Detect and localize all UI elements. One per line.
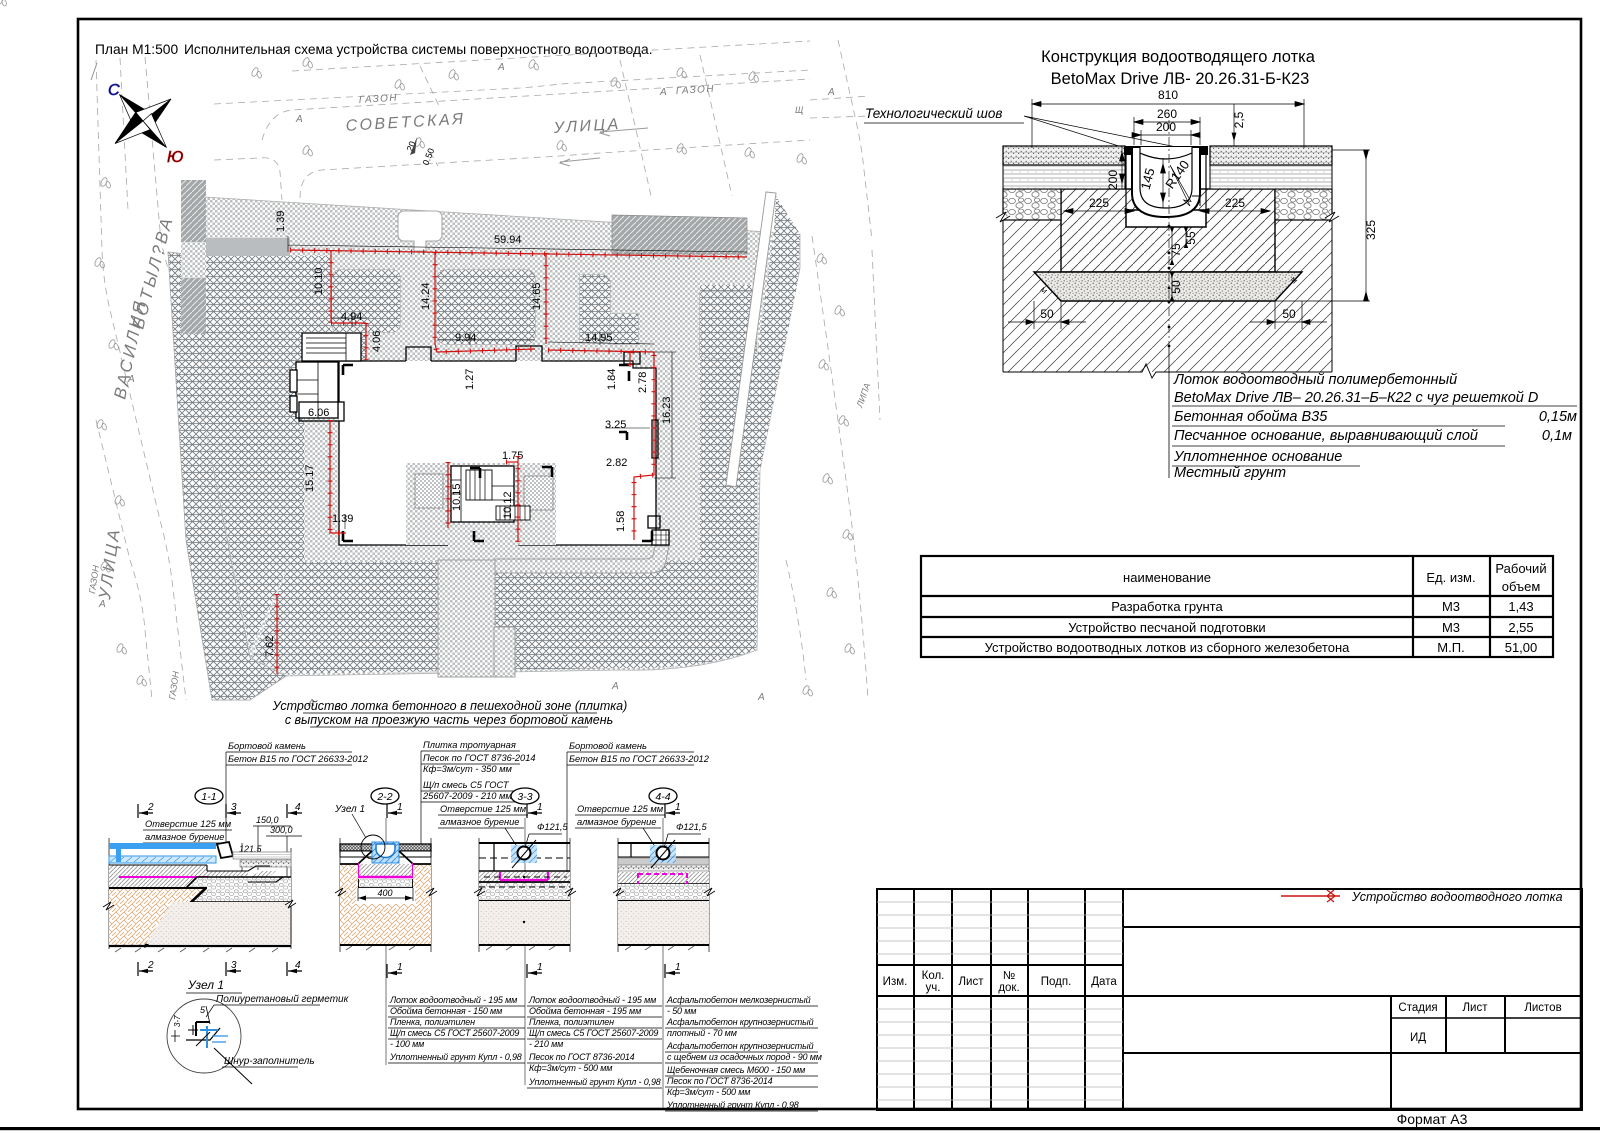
svg-text:Лоток водоотводный полимербето: Лоток водоотводный полимербетонный	[1173, 372, 1457, 388]
svg-text:10.12: 10.12	[502, 491, 514, 519]
svg-text:Рабочий: Рабочий	[1495, 561, 1546, 576]
svg-text:Уплотненный грунт Купл - 0,98: Уплотненный грунт Купл - 0,98	[389, 1052, 522, 1062]
svg-text:260: 260	[1157, 107, 1177, 121]
svg-text:4-4: 4-4	[655, 791, 670, 803]
svg-text:1-1: 1-1	[201, 791, 216, 803]
svg-text:3-3: 3-3	[517, 791, 532, 803]
svg-text:0,15м: 0,15м	[1539, 409, 1577, 425]
svg-text:9.94: 9.94	[455, 332, 476, 344]
svg-text:- 50 мм: - 50 мм	[667, 1006, 696, 1016]
svg-text:Подп.: Подп.	[1041, 976, 1072, 988]
svg-text:75: 75	[1169, 243, 1183, 257]
svg-text:2,5: 2,5	[1232, 111, 1246, 128]
svg-text:Устройство водоотводных лотков: Устройство водоотводных лотков из сборно…	[985, 640, 1351, 655]
svg-text:ГАЗОН: ГАЗОН	[676, 84, 716, 97]
svg-text:BetoMax Drive ЛВ– 20.26.31–Б–К: BetoMax Drive ЛВ– 20.26.31–Б–К22 с чуг р…	[1174, 390, 1538, 406]
svg-text:Песок по ГОСТ 8736-2014: Песок по ГОСТ 8736-2014	[667, 1076, 773, 1086]
svg-text:Кол.: Кол.	[922, 970, 945, 982]
svg-text:А: А	[98, 599, 106, 610]
svg-text:4: 4	[295, 802, 301, 813]
svg-text:4.94: 4.94	[341, 311, 362, 323]
svg-text:225: 225	[1225, 196, 1245, 210]
svg-text:План М1:500: План М1:500	[95, 42, 178, 57]
svg-text:1.84: 1.84	[606, 369, 618, 390]
svg-text:325: 325	[1364, 220, 1378, 240]
svg-text:объем: объем	[1502, 579, 1541, 594]
svg-text:50: 50	[1282, 307, 1296, 321]
svg-text:Местный грунт: Местный грунт	[1174, 465, 1286, 481]
svg-text:Устройство водоотводного лотка: Устройство водоотводного лотка	[1351, 890, 1563, 904]
svg-text:50: 50	[1169, 280, 1183, 294]
svg-text:3: 3	[231, 960, 237, 971]
svg-text:А: А	[757, 692, 765, 703]
svg-text:М3: М3	[1442, 620, 1460, 635]
svg-text:300,0: 300,0	[270, 825, 293, 835]
svg-text:Пленка, полиэтилен: Пленка, полиэтилен	[529, 1017, 614, 1027]
svg-text:Устройство лотка бетонного в п: Устройство лотка бетонного в пешеходной …	[272, 699, 628, 713]
svg-text:Кф=3м/сут - 500 мм: Кф=3м/сут - 500 мм	[667, 1087, 750, 1097]
svg-text:14.65: 14.65	[531, 282, 543, 310]
svg-text:Разработка грунта: Разработка грунта	[1111, 599, 1223, 614]
svg-text:Щ/п смесь С5 ГОСТ 25607-2009: Щ/п смесь С5 ГОСТ 25607-2009	[529, 1028, 658, 1038]
svg-text:Устройство песчаной подготовки: Устройство песчаной подготовки	[1068, 620, 1265, 635]
svg-text:0,1м: 0,1м	[1542, 428, 1572, 444]
svg-text:Песчанное основание, выравнива: Песчанное основание, выравнивающий слой	[1174, 428, 1478, 444]
svg-text:А: А	[827, 87, 835, 98]
svg-text:Уплотненный грунт Купл - 0,98: Уплотненный грунт Купл - 0,98	[528, 1077, 661, 1087]
svg-text:Бортовой камень: Бортовой камень	[569, 741, 647, 751]
svg-text:Кф=3м/сут - 500 мм: Кф=3м/сут - 500 мм	[529, 1063, 612, 1073]
svg-text:2.78: 2.78	[637, 372, 649, 393]
svg-text:Отверстие 125 мм: Отверстие 125 мм	[577, 804, 664, 814]
svg-text:с щебнем из осадочных пород -: с щебнем из осадочных пород - 90 мм	[667, 1052, 822, 1062]
svg-text:1.39: 1.39	[275, 211, 287, 232]
svg-text:3: 3	[231, 802, 237, 813]
svg-text:1: 1	[537, 962, 543, 973]
svg-text:Формат А3: Формат А3	[1397, 1111, 1468, 1127]
svg-text:Конструкция водоотводящего лот: Конструкция водоотводящего лотка	[1041, 48, 1316, 66]
svg-text:2: 2	[147, 960, 154, 971]
svg-text:Асфальтобетон крупнозернистый: Асфальтобетон крупнозернистый	[666, 1041, 814, 1051]
svg-text:Пленка, полиэтилен: Пленка, полиэтилен	[390, 1017, 475, 1027]
svg-text:1: 1	[397, 802, 403, 813]
svg-text:BetoMax Drive ЛВ- 20.26.31-Б-К: BetoMax Drive ЛВ- 20.26.31-Б-К23	[1051, 70, 1310, 88]
svg-text:810: 810	[1158, 88, 1178, 102]
svg-text:№: №	[1003, 970, 1015, 982]
svg-text:200: 200	[1106, 170, 1120, 190]
svg-text:- 210 мм: - 210 мм	[529, 1039, 563, 1049]
svg-text:6.06: 6.06	[308, 407, 329, 419]
svg-text:А: А	[295, 114, 303, 125]
svg-text:25607-2009 - 210 мм: 25607-2009 - 210 мм	[422, 791, 512, 801]
svg-text:59.94: 59.94	[494, 234, 522, 246]
svg-text:14.95: 14.95	[585, 332, 613, 344]
svg-text:1.27: 1.27	[464, 369, 476, 390]
svg-text:Технологический шов: Технологический шов	[865, 106, 1002, 121]
svg-text:алмазное бурение: алмазное бурение	[440, 817, 519, 827]
svg-text:Песок по ГОСТ 8736-2014: Песок по ГОСТ 8736-2014	[529, 1052, 635, 1062]
svg-text:Дата: Дата	[1091, 976, 1117, 988]
svg-text:Ф121,5: Ф121,5	[537, 822, 568, 832]
svg-text:Щ: Щ	[795, 105, 804, 115]
svg-text:2.82: 2.82	[606, 457, 627, 469]
svg-text:Исполнительная схема устройс: Исполнительная схема устройства системы …	[184, 42, 653, 57]
svg-text:10.15: 10.15	[451, 483, 463, 511]
svg-text:3.25: 3.25	[605, 419, 626, 431]
svg-text:200: 200	[1156, 120, 1176, 134]
svg-text:плотный - 70 мм: плотный - 70 мм	[667, 1028, 737, 1038]
svg-text:Ю: Ю	[167, 149, 183, 166]
svg-text:Шнур-заполнитель: Шнур-заполнитель	[224, 1056, 315, 1067]
svg-text:А: А	[497, 62, 505, 73]
svg-text:3-7: 3-7	[173, 1015, 182, 1027]
svg-text:А: А	[127, 374, 135, 385]
svg-text:16.23: 16.23	[661, 396, 673, 424]
svg-text:225: 225	[1089, 196, 1109, 210]
svg-text:51,00: 51,00	[1505, 640, 1538, 655]
svg-text:Щ/п смесь С5 ГОСТ 25607-2009: Щ/п смесь С5 ГОСТ 25607-2009	[390, 1028, 519, 1038]
svg-text:Щ/п смесь С5 ГОСТ: Щ/п смесь С5 ГОСТ	[423, 780, 510, 790]
svg-text:4: 4	[295, 960, 301, 971]
svg-text:М3: М3	[1442, 599, 1460, 614]
svg-text:1.75: 1.75	[502, 450, 523, 462]
svg-text:Обойма бетонная - 195 мм: Обойма бетонная - 195 мм	[529, 1006, 641, 1016]
svg-text:Бетон В15 по ГОСТ 26633-2012: Бетон В15 по ГОСТ 26633-2012	[228, 754, 369, 764]
svg-text:ИД: ИД	[1410, 1032, 1426, 1044]
svg-text:Кф=3м/сут - 350 мм: Кф=3м/сут - 350 мм	[423, 764, 512, 774]
svg-text:55: 55	[1184, 231, 1198, 245]
svg-text:150,0: 150,0	[256, 815, 279, 825]
svg-text:1.58: 1.58	[615, 511, 627, 532]
svg-text:Асфальтобетон крупнозернистый: Асфальтобетон крупнозернистый	[666, 1017, 814, 1027]
svg-text:Песок по ГОСТ 8736-2014: Песок по ГОСТ 8736-2014	[423, 753, 536, 763]
svg-text:Асфальтобетон мелкозернистый: Асфальтобетон мелкозернистый	[666, 995, 811, 1005]
svg-text:Ф121,5: Ф121,5	[676, 822, 707, 832]
svg-text:7.62: 7.62	[264, 636, 276, 657]
svg-text:А: А	[659, 87, 667, 98]
svg-text:400: 400	[377, 888, 392, 898]
svg-text:Стадия: Стадия	[1398, 1002, 1437, 1014]
svg-text:Лоток водоотводный - 195 мм: Лоток водоотводный - 195 мм	[528, 995, 656, 1005]
svg-text:Уплотненное основание: Уплотненное основание	[1173, 449, 1342, 465]
svg-text:алмазное бурение: алмазное бурение	[145, 832, 224, 842]
svg-text:1: 1	[675, 962, 681, 973]
svg-text:док.: док.	[998, 982, 1019, 994]
svg-text:1: 1	[397, 962, 403, 973]
svg-text:А: А	[611, 681, 619, 692]
svg-text:М.П.: М.П.	[1437, 640, 1464, 655]
svg-text:Уплотненный грунт Купл - 0,98: Уплотненный грунт Купл - 0,98	[666, 1100, 799, 1110]
svg-text:Ед. изм.: Ед. изм.	[1426, 570, 1475, 585]
svg-text:наименование: наименование	[1123, 570, 1211, 585]
svg-text:Бетонная обойма В35: Бетонная обойма В35	[1174, 409, 1328, 425]
svg-text:50: 50	[1040, 307, 1054, 321]
svg-text:14.24: 14.24	[420, 282, 432, 310]
svg-text:Листов: Листов	[1524, 1002, 1561, 1014]
svg-text:с выпуском на проезжую часть ч: с выпуском на проезжую часть через борто…	[285, 713, 613, 727]
svg-text:4.06: 4.06	[371, 331, 383, 352]
svg-text:Полиуретановый герметик: Полиуретановый герметик	[216, 994, 350, 1005]
svg-text:1.39: 1.39	[332, 513, 353, 525]
svg-text:Отверстие 125 мм: Отверстие 125 мм	[440, 804, 527, 814]
svg-text:15.17: 15.17	[304, 464, 316, 492]
svg-text:Узел 1: Узел 1	[334, 804, 365, 815]
svg-text:Лист: Лист	[1463, 1002, 1489, 1014]
svg-text:алмазное бурение: алмазное бурение	[577, 817, 656, 827]
svg-text:Обойма бетонная - 150 мм: Обойма бетонная - 150 мм	[390, 1006, 502, 1016]
svg-text:10.10: 10.10	[313, 267, 325, 295]
svg-text:1: 1	[675, 802, 681, 813]
svg-text:2: 2	[147, 802, 154, 813]
svg-text:2-2: 2-2	[376, 791, 392, 803]
svg-text:Отверстие 125 мм: Отверстие 125 мм	[145, 819, 232, 829]
svg-text:- 100 мм: - 100 мм	[390, 1039, 424, 1049]
svg-text:Изм.: Изм.	[883, 976, 908, 988]
svg-text:1,43: 1,43	[1508, 599, 1533, 614]
svg-text:Бортовой камень: Бортовой камень	[228, 741, 306, 751]
svg-text:ГАЗОН: ГАЗОН	[359, 93, 399, 106]
svg-text:Лоток водоотводный - 195 мм: Лоток водоотводный - 195 мм	[389, 995, 517, 1005]
svg-text:Узел 1: Узел 1	[187, 978, 224, 992]
svg-text:1: 1	[537, 802, 543, 813]
svg-text:2,55: 2,55	[1508, 620, 1533, 635]
svg-text:Лист: Лист	[959, 976, 985, 988]
svg-text:Щебеночная смесь М600 - 150 мм: Щебеночная смесь М600 - 150 мм	[667, 1065, 805, 1075]
svg-text:Плитка тротуарная: Плитка тротуарная	[423, 740, 516, 750]
svg-text:уч.: уч.	[926, 982, 941, 994]
svg-text:Бетон В15 по ГОСТ 26633-2012: Бетон В15 по ГОСТ 26633-2012	[569, 754, 710, 764]
svg-text:С: С	[108, 82, 120, 99]
